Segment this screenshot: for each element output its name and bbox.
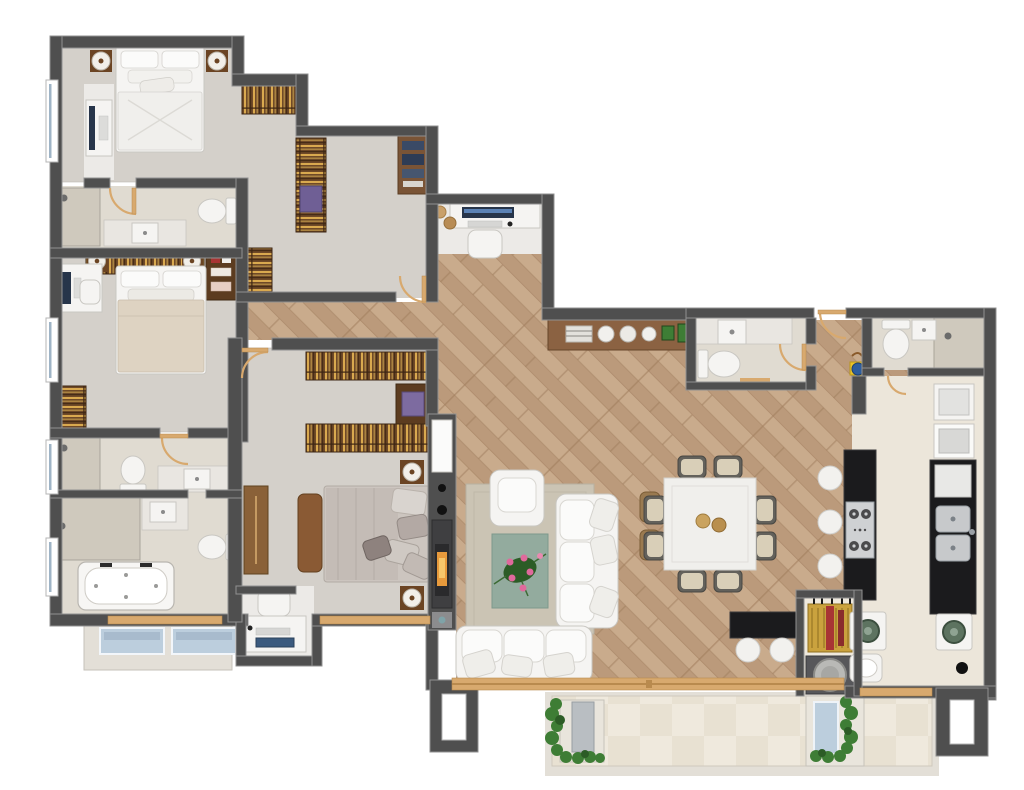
double-bed-3 (324, 486, 435, 582)
floor-plan-svg (0, 0, 1024, 790)
window-bedroom-2 (46, 318, 58, 382)
media-fireplace-wall (428, 414, 456, 630)
computer-screen (256, 638, 294, 647)
decor-vase-2 (444, 217, 456, 229)
desk-chair (80, 280, 100, 304)
nightstand-lamp-top (400, 460, 424, 484)
nightstand-lamp-bottom (400, 586, 424, 610)
double-bed-2 (116, 266, 206, 374)
planter-right (806, 696, 864, 766)
foot-bench (298, 494, 322, 572)
mouse-icon (508, 222, 513, 227)
storage-basket (300, 186, 322, 212)
sofa-right (556, 494, 620, 628)
faucet-icon (969, 529, 975, 535)
bar-stool (736, 638, 760, 662)
toilet-1 (198, 198, 236, 224)
powder-toilet (698, 350, 740, 378)
sofa-front (456, 626, 592, 682)
bar-counter (730, 612, 800, 638)
storage-cabinet (396, 384, 430, 424)
window-master-bath (46, 538, 58, 596)
window-sill-bedroom-3 (320, 616, 430, 624)
main-balcony (545, 692, 939, 776)
desk-computer (58, 264, 102, 312)
potted-plant (662, 326, 674, 340)
floor-drain (956, 662, 968, 674)
nightstand-lamp-left (90, 50, 112, 72)
planter-left (545, 698, 605, 764)
kitchen-window-sill (860, 688, 932, 696)
tub-pillow (100, 563, 112, 567)
double-bed-1 (116, 46, 204, 152)
towel-bar (740, 378, 770, 382)
tv-panel (432, 420, 452, 472)
books-stack (566, 326, 592, 342)
shower-head-icon (945, 333, 952, 340)
floor-plan-page (0, 0, 1024, 790)
tv-screen (89, 106, 95, 150)
keyboard (468, 221, 502, 227)
decor-vase (598, 326, 614, 342)
bbq-grill (808, 596, 852, 652)
glass-panel (814, 702, 838, 754)
faucet-icon (143, 231, 147, 235)
monitor (62, 272, 71, 304)
service-shower (934, 318, 984, 370)
cooktop (846, 502, 874, 558)
speaker-knob (438, 484, 446, 492)
balcony-sliding-door (452, 678, 844, 690)
armchair (490, 470, 544, 526)
shelf-unit-right (296, 138, 326, 232)
decor-vase (642, 327, 656, 341)
decor-vase (620, 326, 636, 342)
keyboard (256, 628, 290, 635)
shelf-unit-mid (306, 424, 428, 452)
decor-vase (439, 617, 446, 624)
bathtub (78, 562, 174, 610)
dryer (936, 614, 972, 650)
entry-chair (468, 230, 502, 258)
balcony-bench (572, 702, 594, 752)
cutting-board (935, 465, 971, 497)
balcony-floor (552, 696, 932, 766)
window-bathroom (46, 440, 58, 494)
glass-planter-2 (172, 628, 236, 654)
window-sill-bath (108, 616, 222, 624)
centerpiece-bowl (712, 518, 726, 532)
toilet-2 (120, 456, 146, 493)
nightstand-lamp-right (206, 50, 228, 72)
service-toilet (882, 320, 910, 359)
column-left (430, 680, 478, 752)
bookshelf (398, 136, 428, 194)
bar-stool (770, 638, 794, 662)
square-dining-table (664, 478, 756, 570)
window-bedroom-1 (46, 80, 58, 162)
bar-stools (818, 466, 842, 578)
shelf-unit-top (306, 352, 434, 380)
speaker-knob (437, 505, 447, 515)
walk-in-shower (54, 498, 140, 560)
hall-console (548, 320, 694, 350)
glass-planter-1 (100, 628, 164, 654)
shelf-unit-top (242, 86, 300, 114)
centerpiece-bowl (696, 514, 710, 528)
column-right (936, 688, 988, 756)
